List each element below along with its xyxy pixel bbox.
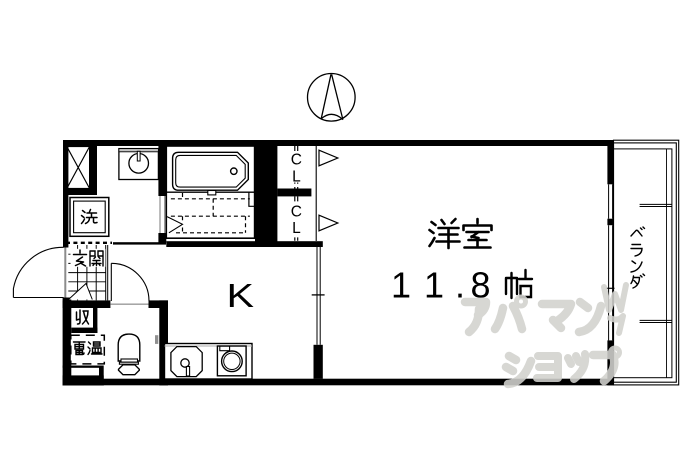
svg-text:C: C: [291, 204, 302, 221]
svg-text:L: L: [292, 220, 301, 237]
svg-text:L: L: [292, 168, 301, 185]
svg-text:1: 1: [424, 265, 444, 306]
svg-text:K: K: [227, 277, 255, 314]
svg-text:C: C: [291, 151, 302, 168]
svg-text:1: 1: [391, 265, 411, 306]
